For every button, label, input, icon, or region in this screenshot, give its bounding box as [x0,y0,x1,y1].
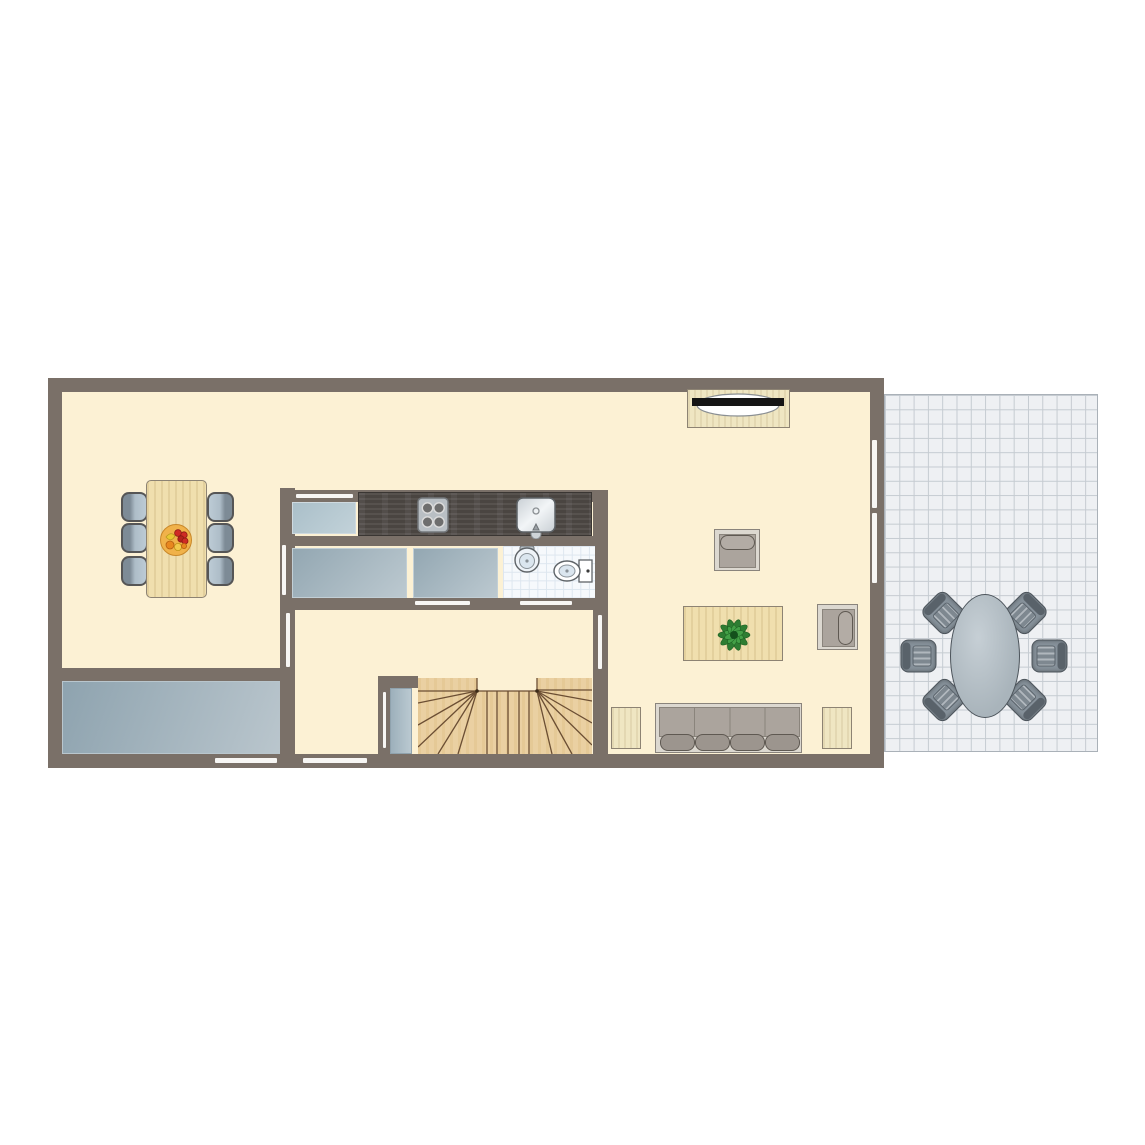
sofa-seat-cushion [730,734,765,751]
dining-chair [121,556,148,586]
armchair [714,529,760,571]
patio-chair [1032,640,1068,673]
plant-icon [716,617,752,653]
closet-door [390,688,412,754]
sofa-seat-cushion [765,734,800,751]
door-bathroom [520,601,572,605]
armchair-back-cushion [720,535,755,550]
kitchen-window-opening [282,545,286,595]
bathroom-fixtures [503,546,595,598]
patio-chair [901,640,937,673]
patio-chair-seat [1037,646,1056,667]
staircase [418,678,592,754]
interior-wall-kitchen-middle [280,536,608,546]
patio-chair-seat [913,646,932,667]
patio-chair-back [1058,643,1066,670]
tv-cabinet [687,389,790,428]
armchair [817,604,858,650]
sofa-seat-cushion [695,734,730,751]
door-hall-living [598,615,602,669]
coffee-table [683,606,783,661]
sofa-back-cushions [659,707,800,737]
sofa [655,703,802,753]
window-right-lower [872,513,877,583]
sofa-seat-cushion [660,734,695,751]
storage-room-floor [62,681,283,754]
kitchen-counter [358,492,592,536]
door-dining-hall [286,613,290,667]
patio-terrace [884,394,1098,752]
window-bottom-hall [303,758,367,763]
kitchen-cabinet-small [292,502,356,534]
kitchen-cabinet-right [413,548,498,598]
fruit-bowl-icon [159,523,193,557]
tv-icon [688,390,788,426]
interior-wall-storage-top [48,668,295,681]
side-table [611,707,641,749]
dining-chair [207,523,234,553]
dining-chair [207,556,234,586]
dining-chair [207,492,234,522]
kitchen-hatch-opening [296,494,353,498]
door-kitchen [415,601,470,605]
kitchen-sink-icon [516,497,556,539]
dining-chair [121,523,148,553]
side-table [822,707,852,749]
patio-table [950,594,1020,718]
window-bottom-left [215,758,277,763]
armchair-back-cushion [838,611,853,645]
floor-plan-canvas: { "meta": { "type": "floor-plan", "view"… [0,0,1145,1145]
kitchen-cabinet-left [292,548,407,598]
closet-door-line [383,692,386,748]
window-right-upper [872,440,877,508]
patio-chair-back [903,643,911,670]
bathroom-floor [503,546,595,598]
dining-chair [121,492,148,522]
stove-icon [417,497,449,533]
